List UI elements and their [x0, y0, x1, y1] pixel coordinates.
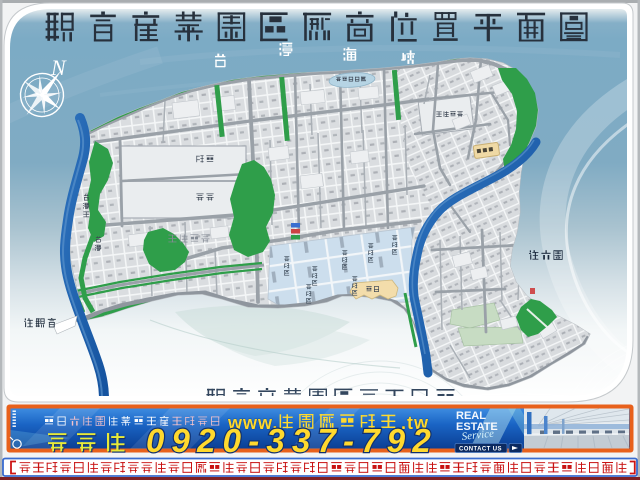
svg-text:0920-337-792: 0920-337-792 — [146, 422, 438, 459]
svg-text:N: N — [50, 55, 67, 80]
svg-text:CONTACT US: CONTACT US — [459, 447, 502, 453]
